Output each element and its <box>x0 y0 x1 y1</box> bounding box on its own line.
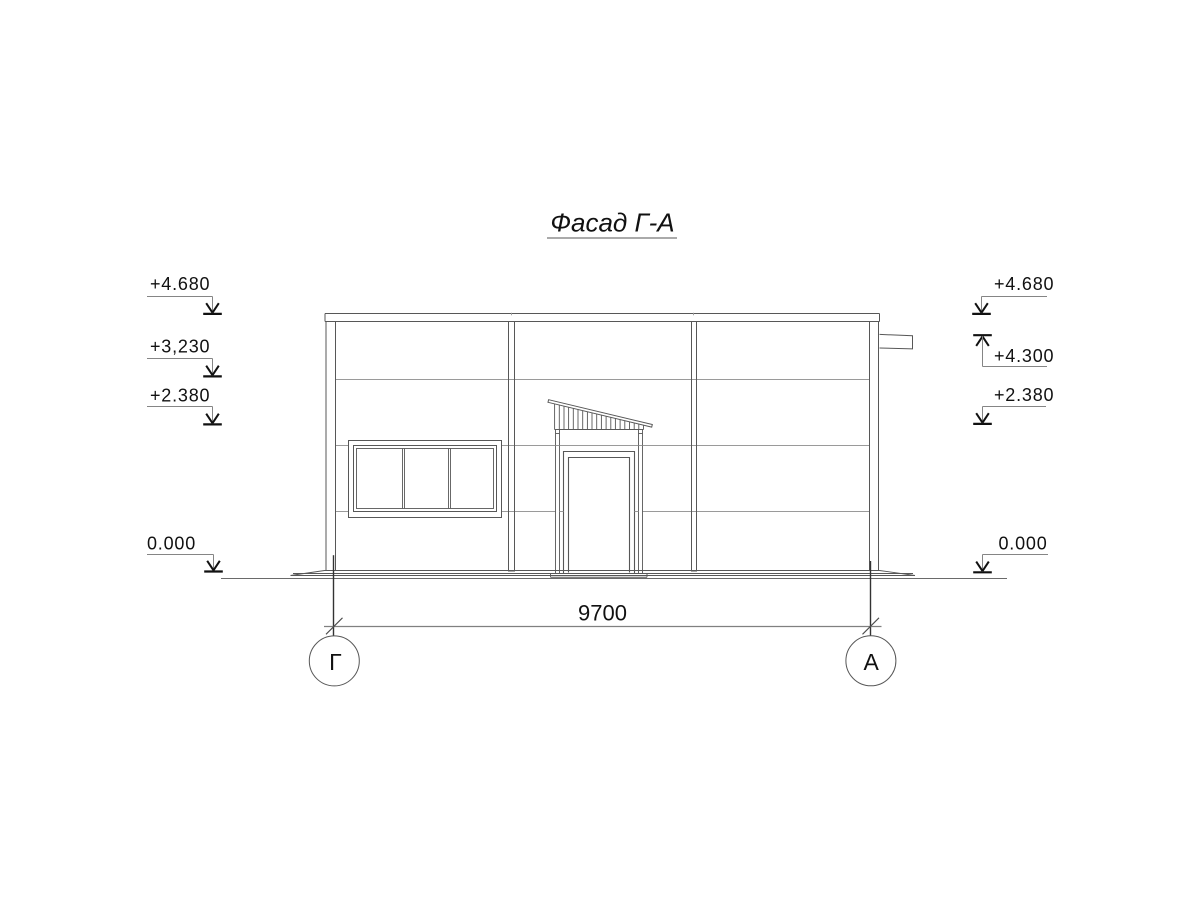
svg-text:А: А <box>864 649 880 675</box>
svg-text:+4.680: +4.680 <box>994 274 1054 294</box>
svg-text:+4.300: +4.300 <box>994 346 1054 366</box>
svg-text:Фасад Г-А: Фасад Г-А <box>550 208 674 238</box>
svg-text:+2.380: +2.380 <box>150 386 210 406</box>
svg-text:+4.680: +4.680 <box>150 274 210 294</box>
svg-text:0.000: 0.000 <box>999 533 1048 553</box>
svg-text:+2.380: +2.380 <box>994 385 1054 405</box>
svg-text:0.000: 0.000 <box>147 534 196 554</box>
svg-text:9700: 9700 <box>578 601 627 626</box>
svg-text:Г: Г <box>329 649 342 675</box>
svg-text:+3,230: +3,230 <box>150 337 210 357</box>
